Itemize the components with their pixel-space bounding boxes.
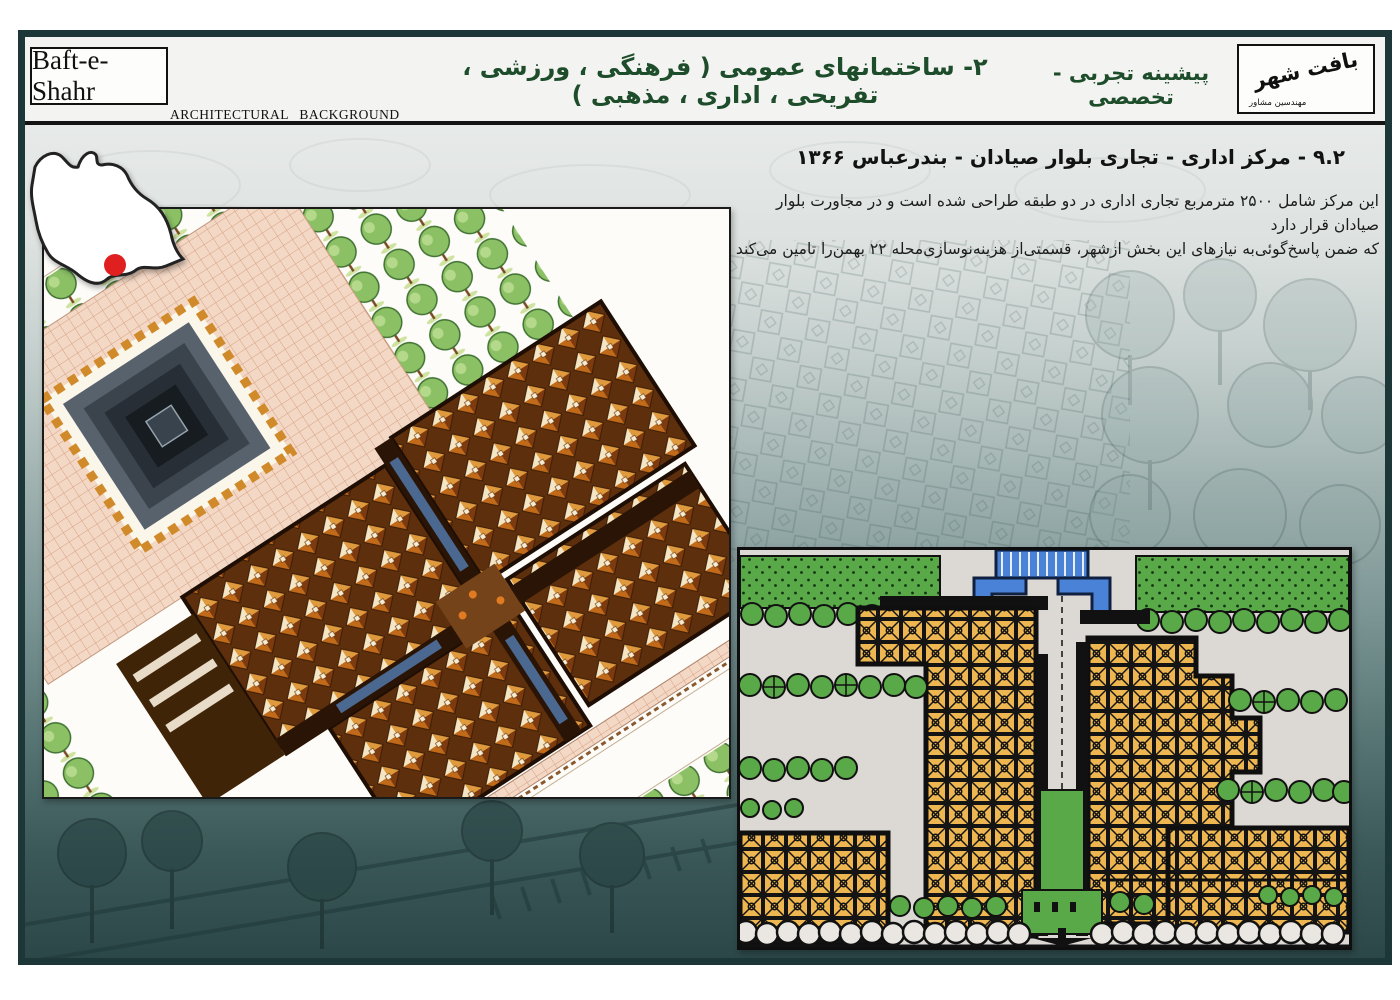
project-description: این مرکز شامل ۲۵۰۰ مترمربع تجاری اداری د… bbox=[731, 189, 1379, 261]
faded-sketch-trees-bottom bbox=[25, 775, 737, 958]
description-line-2: که ضمن پاسخ‌گوئی‌به نیازهای این بخش ازشه… bbox=[736, 240, 1379, 258]
faded-sketch-roofs bbox=[690, 240, 1130, 570]
project-title-farsi: ۹.۲ - مرکز اداری - تجاری بلوار صیادان - … bbox=[796, 145, 1345, 169]
site-plan-drawing bbox=[737, 547, 1352, 950]
description-line-1: این مرکز شامل ۲۵۰۰ مترمربع تجاری اداری د… bbox=[776, 192, 1379, 234]
document-frame: Baft-e-Shahr ARCHITECTURAL BACKGROUND ۲-… bbox=[18, 30, 1392, 965]
faded-sketch-trees-right-svg bbox=[1070, 255, 1385, 585]
iran-map-icon bbox=[25, 141, 189, 293]
bandar-abbas-location-dot bbox=[104, 254, 126, 276]
faded-sketch-roofs-svg bbox=[690, 240, 1130, 570]
iran-map-svg bbox=[25, 141, 189, 293]
brand-subtitle: مهندسین مشاور bbox=[1249, 98, 1306, 108]
header-subtitle: ARCHITECTURAL BACKGROUND bbox=[170, 107, 400, 123]
company-logo-text: Baft-e-Shahr bbox=[32, 45, 166, 107]
slide-page: Baft-e-Shahr ARCHITECTURAL BACKGROUND ۲-… bbox=[0, 0, 1400, 1000]
content-area: ۹.۲ - مرکز اداری - تجاری بلوار صیادان - … bbox=[25, 125, 1385, 958]
site-plan-svg bbox=[740, 550, 1349, 947]
faded-sketch-trees-bottom-svg bbox=[25, 775, 737, 958]
perspective-svg bbox=[44, 209, 729, 797]
faded-sketch-trees-right bbox=[1070, 255, 1385, 585]
brand-logo-box: بافت شهر مهندسین مشاور bbox=[1237, 44, 1375, 114]
aerial-perspective-watercolor-drawing bbox=[42, 207, 731, 799]
logo-box: Baft-e-Shahr bbox=[30, 47, 168, 105]
chapter-title-farsi: ۲- ساختمانهای عمومی ( فرهنگی ، ورزشی ، ت… bbox=[445, 53, 1005, 109]
category-title-farsi: پیشینه تجربی - تخصصی bbox=[1025, 61, 1237, 109]
brand-calligraphy: بافت شهر bbox=[1251, 47, 1360, 93]
page-header: Baft-e-Shahr ARCHITECTURAL BACKGROUND ۲-… bbox=[25, 37, 1385, 125]
hedge-top-right bbox=[1136, 556, 1349, 612]
rotated-site-scene bbox=[44, 209, 729, 797]
